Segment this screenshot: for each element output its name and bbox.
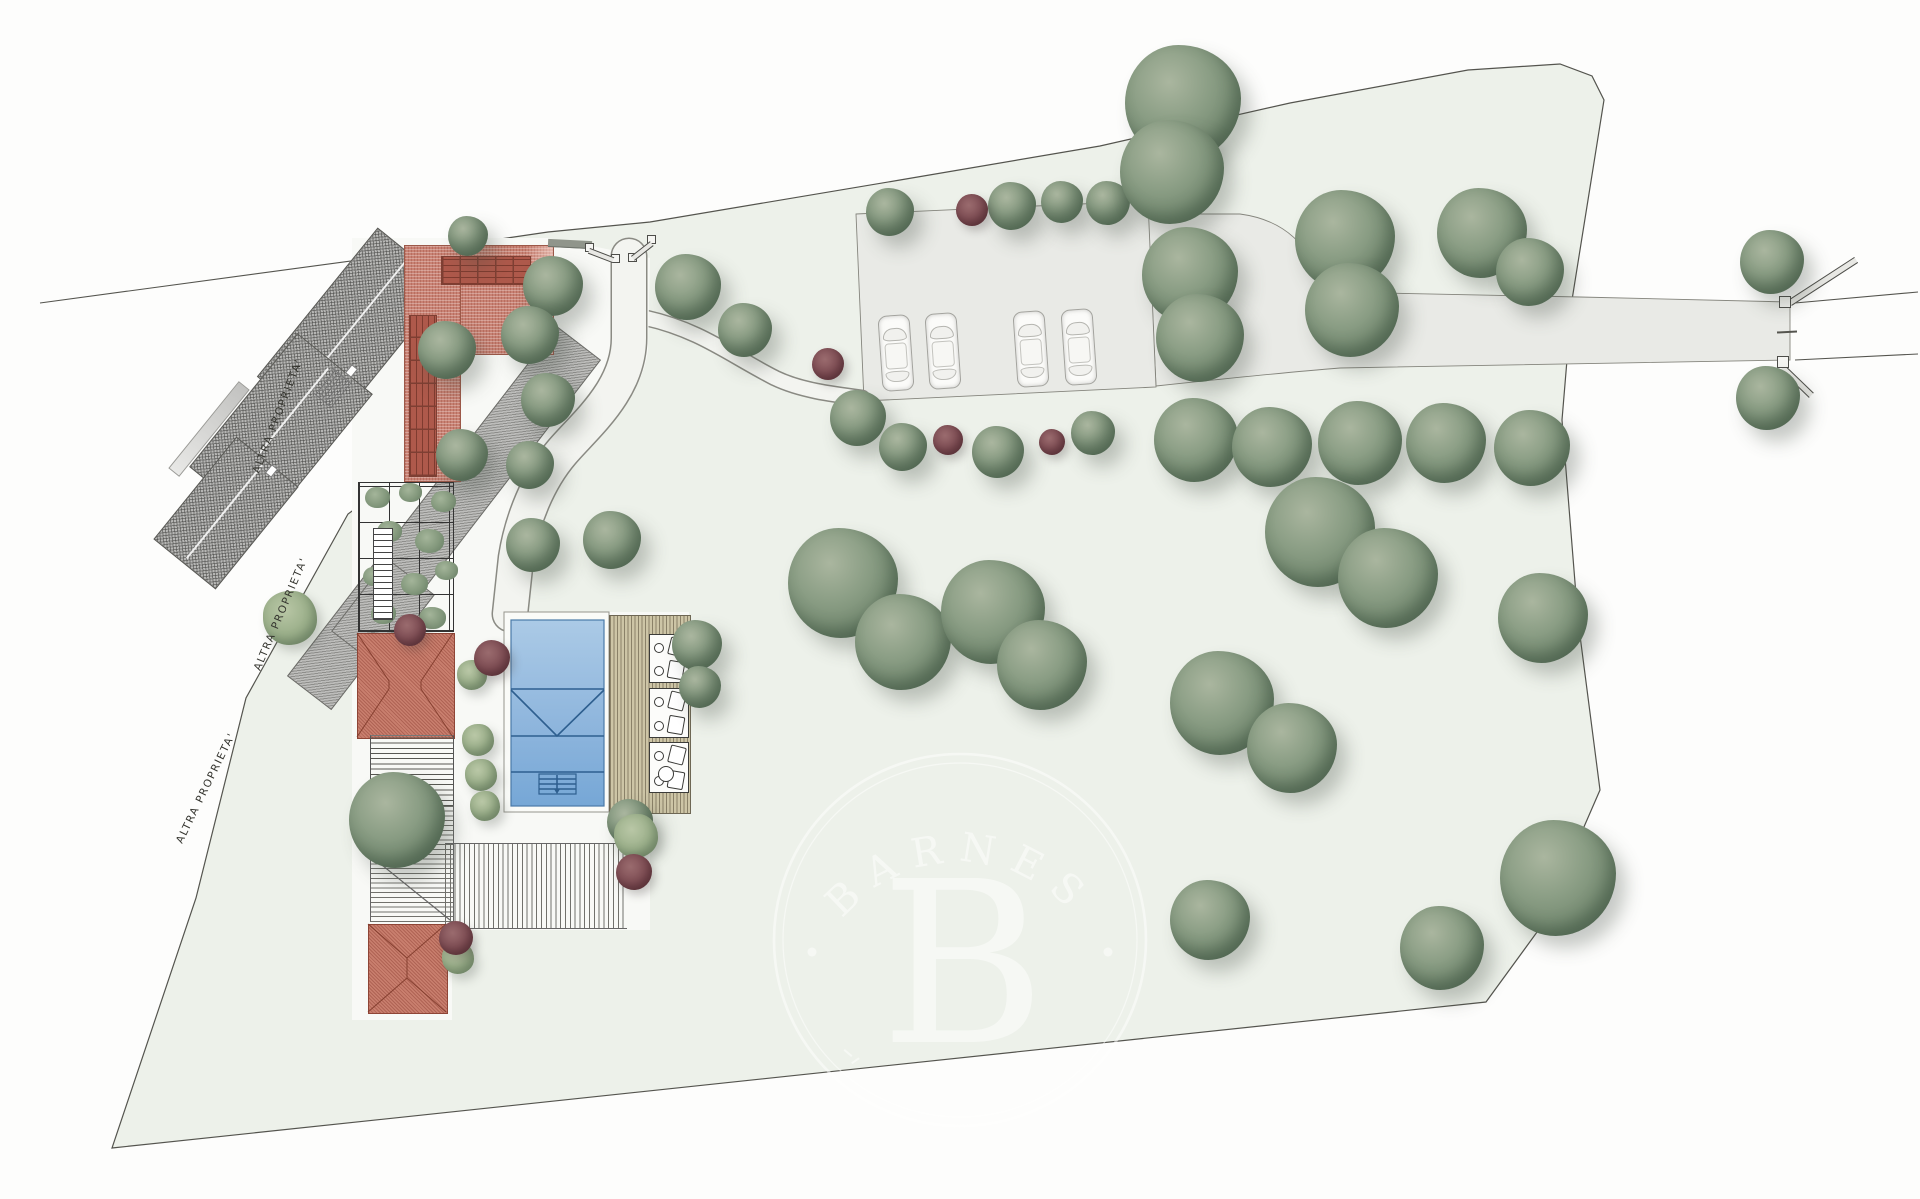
site-plan-canvas: ALTRA PROPRIETA' ALTRA PROPRIETA' ALTRA …: [0, 0, 1920, 1199]
watermark-dot-right: [1104, 948, 1113, 957]
watermark-bottom-mark: [844, 1049, 853, 1057]
watermark-initial: B: [880, 834, 1045, 1096]
watermark-dot-left: [808, 948, 817, 957]
watermark-bottom-mark: [851, 1057, 860, 1064]
watermark: BARNES B: [0, 0, 1920, 1199]
